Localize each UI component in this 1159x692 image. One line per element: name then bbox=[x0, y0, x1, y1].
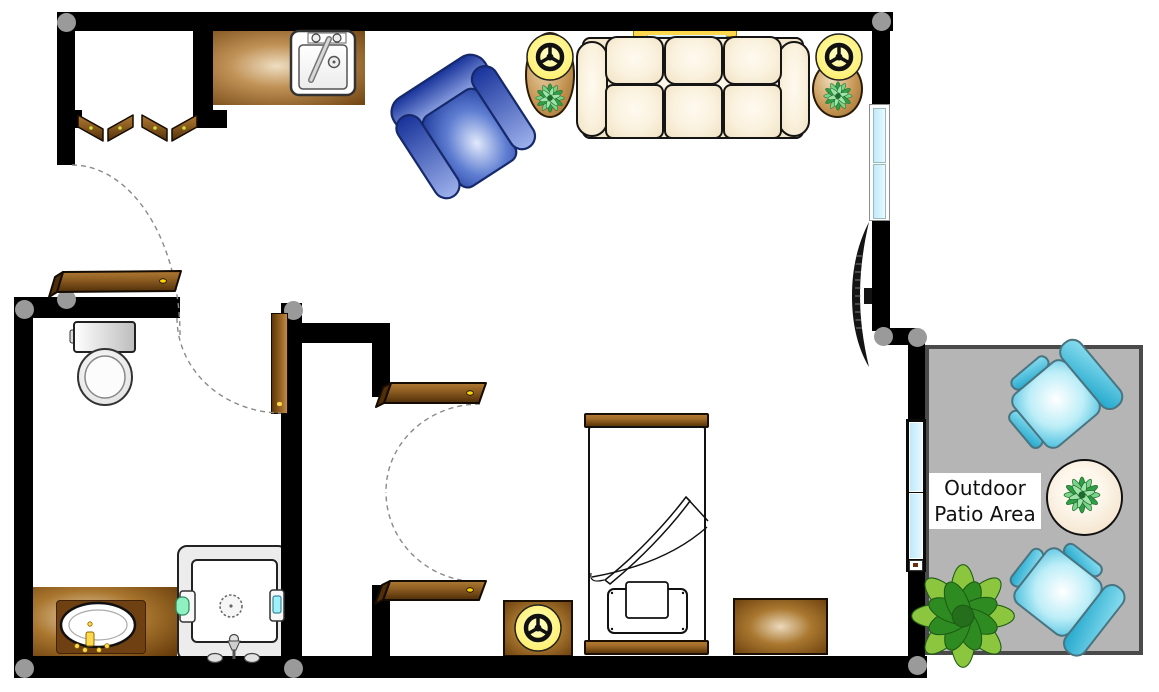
blue-armchair bbox=[382, 46, 541, 205]
wall-top bbox=[57, 12, 893, 31]
wall-entry-stub bbox=[74, 110, 82, 128]
shower-floor bbox=[191, 559, 278, 643]
wall-bathroom-top bbox=[14, 297, 180, 318]
patio-label-line1: Outdoor bbox=[944, 475, 1026, 501]
wall-wardrobe-top bbox=[302, 323, 390, 343]
dresser bbox=[733, 598, 828, 655]
patio-label-line2: Patio Area bbox=[934, 501, 1035, 527]
bed bbox=[588, 426, 706, 643]
entry-bifold-doors bbox=[78, 115, 197, 141]
sofa-seat-cushion bbox=[664, 84, 723, 139]
corner-post bbox=[57, 13, 76, 32]
corner-post bbox=[15, 659, 34, 678]
bifold-panel bbox=[108, 115, 133, 141]
wall-bottom bbox=[14, 656, 927, 678]
wardrobe-shelf-lower bbox=[375, 581, 486, 604]
window-right-wall bbox=[869, 104, 890, 221]
wall-patio-upper bbox=[908, 337, 925, 421]
nightstand bbox=[503, 600, 573, 657]
sliding-door-pane bbox=[909, 422, 923, 492]
sofa-seat-cushion bbox=[605, 84, 664, 139]
sofa bbox=[576, 33, 810, 143]
shower-stall bbox=[177, 545, 288, 661]
patio-label: Outdoor Patio Area bbox=[929, 473, 1041, 529]
wardrobe-shelf-upper bbox=[376, 383, 486, 407]
wall-bathroom-left bbox=[14, 300, 33, 658]
corner-post bbox=[874, 327, 893, 346]
corner-post bbox=[284, 659, 303, 678]
patio-round-table bbox=[1046, 459, 1123, 536]
sofa-back-cushion bbox=[605, 36, 664, 85]
wall-closet-jamb bbox=[193, 28, 213, 110]
corner-post bbox=[57, 290, 76, 309]
side-table-left bbox=[525, 32, 575, 118]
bathroom-door-swing-arc bbox=[177, 318, 281, 413]
sofa-arm-right bbox=[778, 41, 810, 137]
wall-right-mid bbox=[872, 219, 890, 331]
bifold-panel bbox=[142, 115, 167, 141]
bed-footboard bbox=[584, 640, 709, 655]
tv-mount bbox=[864, 288, 872, 304]
bathroom-door bbox=[271, 313, 288, 414]
sliding-patio-door bbox=[906, 419, 926, 572]
door-knob bbox=[277, 402, 282, 406]
floor-plan-canvas: Outdoor Patio Area bbox=[0, 0, 1159, 692]
sliding-door-pane bbox=[909, 493, 923, 559]
sofa-back-cushion bbox=[664, 36, 723, 85]
side-table-right bbox=[812, 60, 863, 118]
tv-icon bbox=[852, 222, 872, 367]
corner-post bbox=[908, 656, 927, 675]
window-pane bbox=[873, 164, 886, 219]
sliding-door-handle bbox=[909, 560, 923, 571]
wardrobe-door-swing-arc bbox=[386, 492, 480, 582]
wall-wardrobe-upper bbox=[372, 343, 390, 397]
sofa-arm-left bbox=[576, 41, 608, 137]
window-pane bbox=[873, 108, 886, 163]
kitchen-counter bbox=[213, 30, 365, 105]
sofa-seat-cushion bbox=[723, 84, 782, 139]
sliding-door-latch bbox=[913, 563, 918, 567]
wall-wardrobe-lower bbox=[372, 585, 390, 658]
wardrobe-door-swing-arc bbox=[386, 404, 480, 491]
corner-post bbox=[908, 328, 927, 347]
toilet bbox=[70, 322, 135, 405]
vanity-basin-surround bbox=[56, 600, 146, 654]
corner-post bbox=[15, 300, 34, 319]
wall-closet-jamb-foot bbox=[193, 110, 227, 128]
corner-post bbox=[872, 12, 891, 31]
sofa-back-cushion bbox=[723, 36, 782, 85]
vanity-counter bbox=[33, 587, 177, 658]
wall-left-upper bbox=[57, 12, 75, 165]
